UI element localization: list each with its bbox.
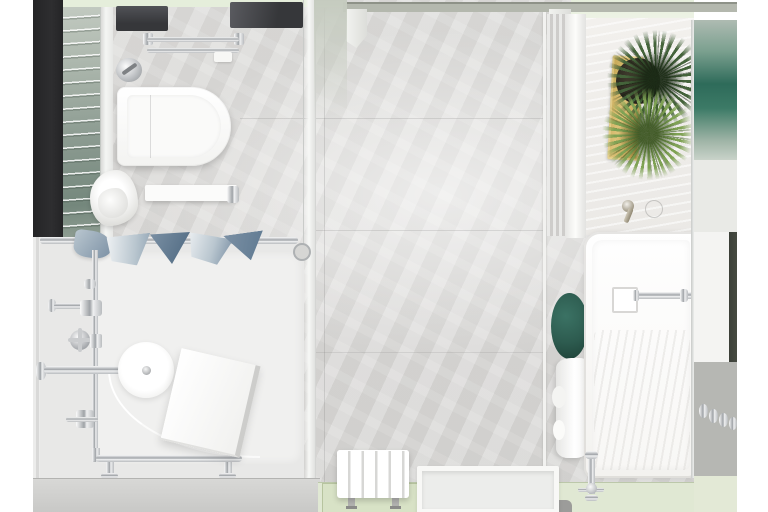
white-partition (565, 14, 586, 238)
wall-hook (729, 417, 737, 430)
wall-shelf (145, 185, 237, 201)
bath-towel-fold (553, 420, 565, 440)
floor-pipe (96, 455, 242, 462)
wall-hook (699, 404, 708, 418)
tub-filler-spout (585, 451, 598, 459)
floor-grout-line (313, 230, 545, 231)
wall-hook (719, 413, 728, 427)
toilet-lid-seam (150, 95, 151, 158)
teal-stool (551, 293, 588, 359)
wall-shadow-band (314, 0, 347, 118)
bathroom-render (0, 0, 768, 512)
shower-valve (80, 300, 102, 316)
wall-column (547, 14, 567, 236)
shower-head-hub (142, 366, 151, 375)
left-margin (0, 0, 33, 512)
tub-surround (694, 232, 730, 368)
bath-towel-fold (552, 386, 566, 408)
wall-hook (709, 409, 718, 423)
floor-grout-line (240, 118, 545, 119)
teal-glass-mosaic (694, 20, 738, 162)
double-towel-rail (147, 37, 239, 42)
bathtub-texture (594, 330, 690, 470)
deck-drain-ring (645, 200, 663, 218)
floor-grout-line (543, 12, 546, 480)
shower-frame-corner (293, 243, 311, 261)
tub-filler-base (585, 495, 598, 501)
tub-bar-clamp (680, 289, 688, 302)
tub-bar-cap (633, 290, 639, 301)
bath-tray (417, 466, 559, 512)
dark-wall-strip (33, 0, 64, 237)
paper-holder (214, 52, 232, 62)
right-margin (737, 0, 768, 512)
bottom-right-glass (694, 476, 740, 512)
ceiling-rain-shower-panel (230, 2, 303, 28)
floor-grout-line (313, 352, 545, 353)
toilet-seat (127, 95, 221, 158)
cross-handle-spoke (68, 338, 92, 342)
doorway-threshold (343, 2, 740, 12)
valve-handle (66, 417, 98, 422)
valve-knob (84, 279, 96, 289)
hand-towel-fold (98, 188, 128, 218)
ceiling-rain-shower-panel (116, 6, 168, 31)
shelf-chrome-cap (227, 186, 239, 203)
shower-valve (90, 334, 102, 348)
bottom-wall-left (33, 478, 320, 512)
tub-filler-knob (586, 483, 597, 494)
stool-foot (390, 506, 401, 509)
slatted-stool (337, 450, 409, 498)
stool-foot (346, 506, 357, 509)
plant-frond-light (602, 88, 694, 180)
white-mosaic-tiles (694, 160, 738, 234)
